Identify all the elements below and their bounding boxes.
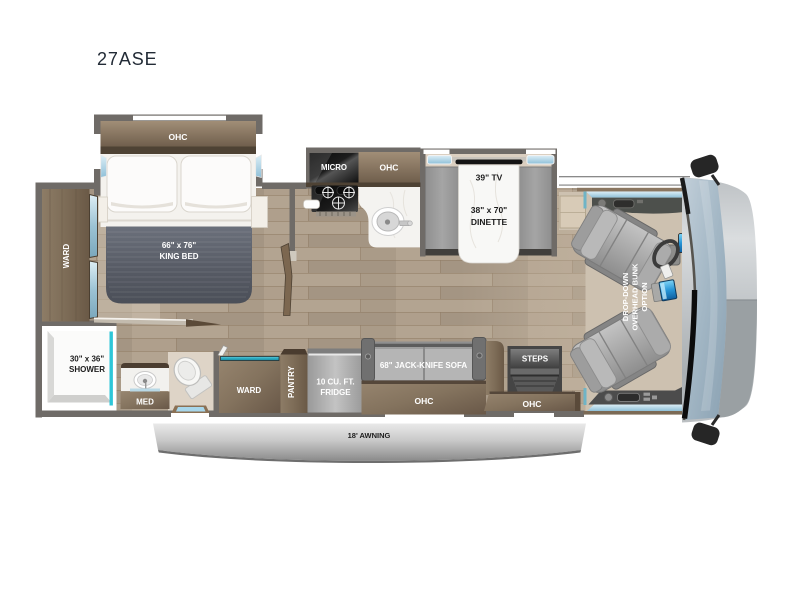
svg-text:MED: MED <box>136 398 154 407</box>
svg-text:39" TV: 39" TV <box>476 173 503 183</box>
svg-text:MICRO: MICRO <box>321 163 347 172</box>
svg-text:30" x 36": 30" x 36" <box>70 355 104 364</box>
svg-text:WARD: WARD <box>237 386 262 395</box>
svg-text:OVERHEAD BUNK: OVERHEAD BUNK <box>631 263 640 331</box>
svg-text:OHC: OHC <box>380 163 399 173</box>
svg-text:PANTRY: PANTRY <box>287 365 296 398</box>
svg-text:OHC: OHC <box>169 132 188 142</box>
svg-text:DROP-DOWN: DROP-DOWN <box>621 273 630 322</box>
svg-text:68" JACK-KNIFE SOFA: 68" JACK-KNIFE SOFA <box>380 361 468 370</box>
svg-text:OHC: OHC <box>415 396 434 406</box>
svg-text:18' AWNING: 18' AWNING <box>348 431 391 440</box>
svg-text:KING BED: KING BED <box>159 252 198 261</box>
svg-text:10 CU. FT.: 10 CU. FT. <box>316 378 354 387</box>
svg-text:OPTION: OPTION <box>640 282 649 311</box>
svg-text:FRIDGE: FRIDGE <box>320 388 351 397</box>
svg-text:66" x 76": 66" x 76" <box>162 241 196 250</box>
svg-text:OHC: OHC <box>523 399 542 409</box>
svg-text:27ASE: 27ASE <box>97 49 158 69</box>
svg-text:DINETTE: DINETTE <box>471 217 508 227</box>
svg-text:WARD: WARD <box>62 244 71 269</box>
svg-text:38" x 70": 38" x 70" <box>471 205 507 215</box>
svg-text:STEPS: STEPS <box>522 355 549 364</box>
svg-text:SHOWER: SHOWER <box>69 365 105 374</box>
